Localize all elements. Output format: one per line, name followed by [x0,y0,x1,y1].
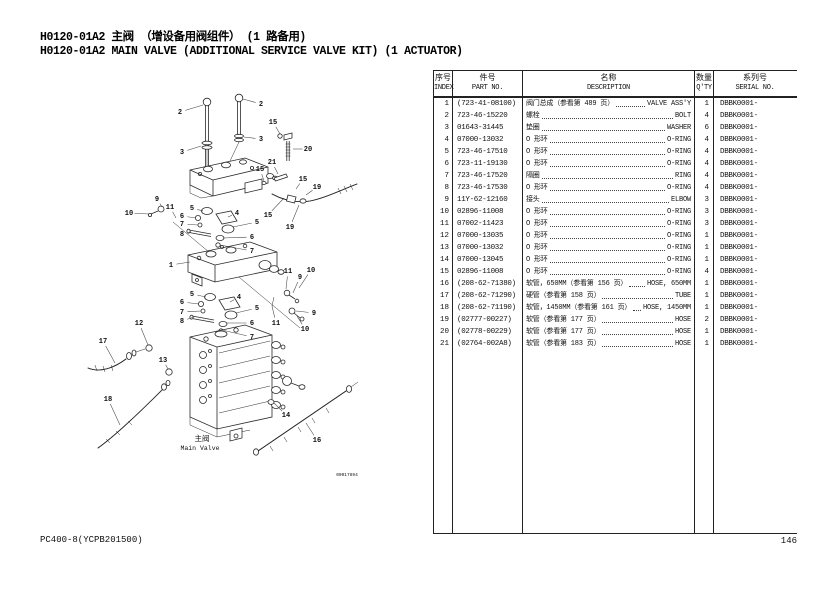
table-row: 12 07000-13035 O 形环 O-RING 1 DBBK0001- [434,230,797,242]
col-header-qty: 数量 Q'TY [695,71,714,96]
callout-label: 2 [259,101,263,109]
callout-leader [187,311,201,312]
table-row: 21 (02764-002A8) 软管（参看第 183 页） HOSE 1 DB… [434,338,797,350]
cell-description: 接头 ELBOW [523,194,695,206]
callout-label: 8 [180,318,184,326]
cell-serial: DBBK0001- [714,158,796,170]
callout-label: 7 [180,309,184,317]
table-row: 9 11Y-62-12160 接头 ELBOW 3 DBBK0001- [434,194,797,206]
cell-serial: DBBK0001- [714,338,796,350]
callout-label: 19 [286,224,294,232]
callout-label: 15 [269,119,277,127]
cell-serial: DBBK0001- [714,314,796,326]
parts-table-body: 1 (723-41-08100) 阀门总成（参看第 489 页） VALVE A… [434,98,797,350]
dotted-leader [602,327,673,335]
dotted-leader [550,183,665,191]
model-code: PC400-8(YCPB201500) [40,535,143,545]
cell-part-no: 723-46-15220 [453,110,523,122]
cell-serial: DBBK0001- [714,170,796,182]
table-row: 17 (208-62-71290) 硬管（参看第 158 页） TUBE 1 D… [434,290,797,302]
callout-label: 4 [235,210,239,218]
cell-part-no: 723-46-17520 [453,170,523,182]
dotted-leader [550,135,665,143]
cell-index: 7 [434,170,453,182]
callout-leader [223,237,247,238]
cell-qty: 1 [695,254,714,266]
drawing-number: 00017894 [336,472,358,478]
cell-part-no: 02896-11008 [453,206,523,218]
cell-description: O 形环 O-RING [523,242,695,254]
dotted-leader [542,195,669,203]
cell-qty: 1 [695,302,714,314]
callout-label: 9 [298,274,302,282]
cell-index: 4 [434,134,453,146]
fitting-20-drawing [278,133,292,161]
cell-serial: DBBK0001- [714,230,796,242]
dotted-leader [550,219,665,227]
col-header-part-no: 件号 PART NO. [453,71,523,96]
cell-qty: 2 [695,314,714,326]
callout-label: 7 [250,334,254,342]
cell-serial: DBBK0001- [714,254,796,266]
dotted-leader [602,339,673,347]
callout-leader [272,306,275,318]
bolt-right-drawing [230,94,244,161]
dotted-leader [550,159,665,167]
cell-description: O 形环 O-RING [523,134,695,146]
cell-index: 16 [434,278,453,290]
cell-index: 12 [434,230,453,242]
callout-label: 7 [180,221,184,229]
cell-index: 10 [434,206,453,218]
dotted-leader [550,207,665,215]
dotted-leader [542,123,665,131]
cell-description: O 形环 O-RING [523,254,695,266]
cell-index: 17 [434,290,453,302]
seal-cluster-lower-drawing [190,294,240,334]
callout-label: 3 [259,136,263,144]
cell-description: 阀门总成（参看第 489 页） VALVE ASS'Y [523,98,695,110]
dotted-leader [542,111,673,119]
callout-label: 5 [190,205,194,213]
callout-leader [306,423,314,435]
cell-part-no: (208-62-71290) [453,290,523,302]
cell-serial: DBBK0001- [714,182,796,194]
cell-part-no: 07000-13032 [453,242,523,254]
cell-index: 19 [434,314,453,326]
table-row: 20 (02778-00229) 软管（参看第 177 页） HOSE 1 DB… [434,326,797,338]
cell-part-no: 07000-13045 [453,254,523,266]
cell-description: 螺栓 BOLT [523,110,695,122]
cell-description: O 形环 O-RING [523,182,695,194]
cell-part-no: 07000-13035 [453,230,523,242]
cell-part-no: (02764-002A8) [453,338,523,350]
dotted-leader [633,303,641,311]
fitting-left-drawing [148,206,164,217]
cell-index: 13 [434,242,453,254]
callout-label: 16 [313,437,321,445]
ring-14-drawing [268,400,274,405]
cell-serial: DBBK0001- [714,242,796,254]
callout-label: 15 [264,212,272,220]
cell-index: 15 [434,266,453,278]
cell-qty: 6 [695,122,714,134]
callout-label: 19 [313,184,321,192]
cell-qty: 4 [695,134,714,146]
callout-label: 15 [256,166,264,174]
table-row: 10 02896-11008 O 形环 O-RING 3 DBBK0001- [434,206,797,218]
fitting-right-upper-drawing [284,290,299,303]
cell-serial: DBBK0001- [714,146,796,158]
dotted-leader [550,147,665,155]
callout-label: 10 [301,326,309,334]
callout-label: 2 [178,109,182,117]
callout-leader [286,276,287,289]
callout-leader [187,224,198,225]
cell-part-no: (208-62-71190) [453,302,523,314]
cell-part-no: 07002-11423 [453,218,523,230]
cell-qty: 1 [695,278,714,290]
parts-table-filler [434,350,797,533]
cell-description: O 形环 O-RING [523,146,695,158]
ring-12-drawing [146,345,152,351]
cell-index: 9 [434,194,453,206]
main-valve-label-en: Main Valve [180,445,219,452]
callout-leader [110,404,120,425]
callout-leader [243,99,256,103]
cell-index: 8 [434,182,453,194]
callout-label: 10 [307,267,315,275]
callout-leader [134,213,149,214]
callout-label: 6 [180,299,184,307]
page-number: 146 [743,536,797,546]
callout-label: 20 [304,146,312,154]
bolt-left-drawing [202,98,212,168]
callout-label: 17 [99,338,107,346]
callout-leader [187,217,196,218]
callout-label: 1 [169,262,173,270]
cell-description: O 形环 O-RING [523,206,695,218]
table-row: 4 07000-13032 O 形环 O-RING 4 DBBK0001- [434,134,797,146]
table-row: 19 (02777-00227) 软管（参看第 177 页） HOSE 2 DB… [434,314,797,326]
cell-qty: 3 [695,218,714,230]
table-row: 6 723-11-19130 O 形环 O-RING 4 DBBK0001- [434,158,797,170]
dotted-leader [602,291,673,299]
cell-part-no: (723-41-08100) [453,98,523,110]
cell-part-no: (208-62-71380) [453,278,523,290]
cell-description: O 形环 O-RING [523,158,695,170]
cell-description: O 形环 O-RING [523,230,695,242]
cell-qty: 1 [695,338,714,350]
cell-part-no: 11Y-62-12160 [453,194,523,206]
callout-label: 14 [282,412,290,420]
cell-serial: DBBK0001- [714,266,796,278]
cell-serial: DBBK0001- [714,206,796,218]
parts-table-header: 序号 INDEX 件号 PART NO. 名称 DESCRIPTION 数量 Q… [434,71,797,98]
callout-leader [306,190,313,195]
cell-index: 21 [434,338,453,350]
cell-index: 5 [434,146,453,158]
callout-leader [233,223,252,227]
hose-17-drawing [88,349,145,372]
cell-qty: 4 [695,266,714,278]
callout-leader [185,105,203,110]
callout-label: 4 [237,294,241,302]
cell-serial: DBBK0001- [714,110,796,122]
callout-leader [293,282,298,293]
cell-qty: 1 [695,98,714,110]
table-row: 2 723-46-15220 螺栓 BOLT 4 DBBK0001- [434,110,797,122]
table-row: 7 723-46-17520 隔圈 RING 4 DBBK0001- [434,170,797,182]
callout-label: 15 [299,176,307,184]
cell-part-no: 01643-31445 [453,122,523,134]
table-row: 5 723-46-17510 O 形环 O-RING 4 DBBK0001- [434,146,797,158]
callout-label: 7 [250,248,254,256]
cell-part-no: 07000-13032 [453,134,523,146]
cell-description: O 形环 O-RING [523,218,695,230]
callout-leader [292,205,299,222]
cell-index: 3 [434,122,453,134]
cell-index: 20 [434,326,453,338]
cell-qty: 3 [695,194,714,206]
cell-index: 2 [434,110,453,122]
table-row: 1 (723-41-08100) 阀门总成（参看第 489 页） VALVE A… [434,98,797,110]
callout-label: 5 [190,291,194,299]
cell-serial: DBBK0001- [714,326,796,338]
main-valve-drawing [190,325,305,441]
callout-label: 8 [180,231,184,239]
callout-label: 9 [155,196,159,204]
table-row: 18 (208-62-71190) 软管，1450MM（参看第 161 页） H… [434,302,797,314]
cell-serial: DBBK0001- [714,194,796,206]
callout-leader [296,311,309,312]
exploded-view-diagram: 2233152021151519151991011567845671119105… [40,75,440,485]
cell-serial: DBBK0001- [714,278,796,290]
diagram-linework [88,94,358,455]
cell-index: 18 [434,302,453,314]
callout-leader [187,303,199,304]
ring-13-drawing [166,369,172,375]
callout-label: 21 [268,159,276,167]
callout-leader [296,184,300,189]
cell-qty: 3 [695,206,714,218]
dotted-leader [550,255,665,263]
callout-label: 11 [166,204,174,212]
callout-leader [276,127,280,134]
callout-label: 11 [272,320,280,328]
callout-leader [166,365,168,369]
cell-description: 软管（参看第 183 页） HOSE [523,338,695,350]
valve-assembly-drawing [188,242,284,286]
cell-qty: 4 [695,146,714,158]
cell-description: 隔圈 RING [523,170,695,182]
callout-leader [141,328,148,345]
callout-leader [187,146,201,150]
dotted-leader [616,99,645,107]
callout-leader [244,137,256,138]
cell-qty: 4 [695,170,714,182]
col-header-description: 名称 DESCRIPTION [523,71,695,96]
table-row: 11 07002-11423 O 形环 O-RING 3 DBBK0001- [434,218,797,230]
callout-label: 13 [159,357,167,365]
cell-part-no: (02777-00227) [453,314,523,326]
cell-description: 软管，1450MM（参看第 161 页） HOSE, 1450MM [523,302,695,314]
page-title-zh: H0120-01A2 主阀 （增设备用阀组件） (1 路备用) [40,31,306,45]
table-row: 13 07000-13032 O 形环 O-RING 1 DBBK0001- [434,242,797,254]
callout-leader [272,198,284,211]
cell-description: 软管，650MM（参看第 156 页） HOSE, 650MM [523,278,695,290]
table-row: 15 02896-11008 O 形环 O-RING 4 DBBK0001- [434,266,797,278]
fitting-right-lower-drawing [272,297,304,321]
hose-18-drawing [98,380,170,448]
cell-part-no: 723-46-17510 [453,146,523,158]
cell-description: 软管（参看第 177 页） HOSE [523,314,695,326]
cell-description: O 形环 O-RING [523,266,695,278]
cell-index: 11 [434,218,453,230]
cell-description: 软管（参看第 177 页） HOSE [523,326,695,338]
cell-part-no: (02778-00229) [453,326,523,338]
page-title-en: H0120-01A2 MAIN VALVE (ADDITIONAL SERVIC… [40,45,463,59]
dotted-leader [550,267,665,275]
cell-description: 硬管（参看第 158 页） TUBE [523,290,695,302]
catalog-page: H0120-01A2 主阀 （增设备用阀组件） (1 路备用) H0120-01… [0,0,840,594]
callout-label: 6 [250,234,254,242]
dotted-leader [629,279,645,287]
cell-qty: 4 [695,110,714,122]
cell-qty: 1 [695,242,714,254]
cell-serial: DBBK0001- [714,134,796,146]
callout-leader [173,212,176,218]
cell-serial: DBBK0001- [714,302,796,314]
dotted-leader [602,315,673,323]
cell-qty: 1 [695,230,714,242]
callout-label: 12 [135,320,143,328]
dotted-leader [542,171,673,179]
callout-label: 11 [284,268,292,276]
cell-serial: DBBK0001- [714,218,796,230]
callout-label: 5 [255,305,259,313]
dotted-leader [550,243,665,251]
cell-index: 1 [434,98,453,110]
callout-label: 6 [250,320,254,328]
callout-leader [106,346,115,363]
dotted-leader [550,231,665,239]
cell-part-no: 723-46-17530 [453,182,523,194]
col-header-serial-no: 系列号 SERIAL NO. [714,71,796,96]
cell-index: 14 [434,254,453,266]
cell-part-no: 02896-11008 [453,266,523,278]
cell-part-no: 723-11-19130 [453,158,523,170]
cell-serial: DBBK0001- [714,98,796,110]
cell-serial: DBBK0001- [714,290,796,302]
callout-label: 6 [180,213,184,221]
main-valve-label-zh: 主阀 [195,433,210,444]
cell-qty: 4 [695,158,714,170]
col-header-index: 序号 INDEX [434,71,453,96]
cell-qty: 1 [695,326,714,338]
table-row: 3 01643-31445 垫圈 WASHER 6 DBBK0001- [434,122,797,134]
parts-table: 序号 INDEX 件号 PART NO. 名称 DESCRIPTION 数量 Q… [433,70,797,534]
cell-index: 6 [434,158,453,170]
callout-label: 10 [125,210,133,218]
callout-leader [274,167,278,174]
cell-description: 垫圈 WASHER [523,122,695,134]
cell-qty: 1 [695,290,714,302]
callout-label: 9 [312,310,316,318]
callout-label: 3 [180,149,184,157]
callout-label: 18 [104,396,112,404]
cell-serial: DBBK0001- [714,122,796,134]
callout-leader [236,309,252,313]
seal-cluster-upper-drawing [187,208,237,248]
pilot-manifold-drawing [190,158,278,198]
table-row: 8 723-46-17530 O 形环 O-RING 4 DBBK0001- [434,182,797,194]
table-row: 16 (208-62-71380) 软管，650MM（参看第 156 页） HO… [434,278,797,290]
callout-label: 5 [255,219,259,227]
cell-qty: 4 [695,182,714,194]
table-row: 14 07000-13045 O 形环 O-RING 1 DBBK0001- [434,254,797,266]
